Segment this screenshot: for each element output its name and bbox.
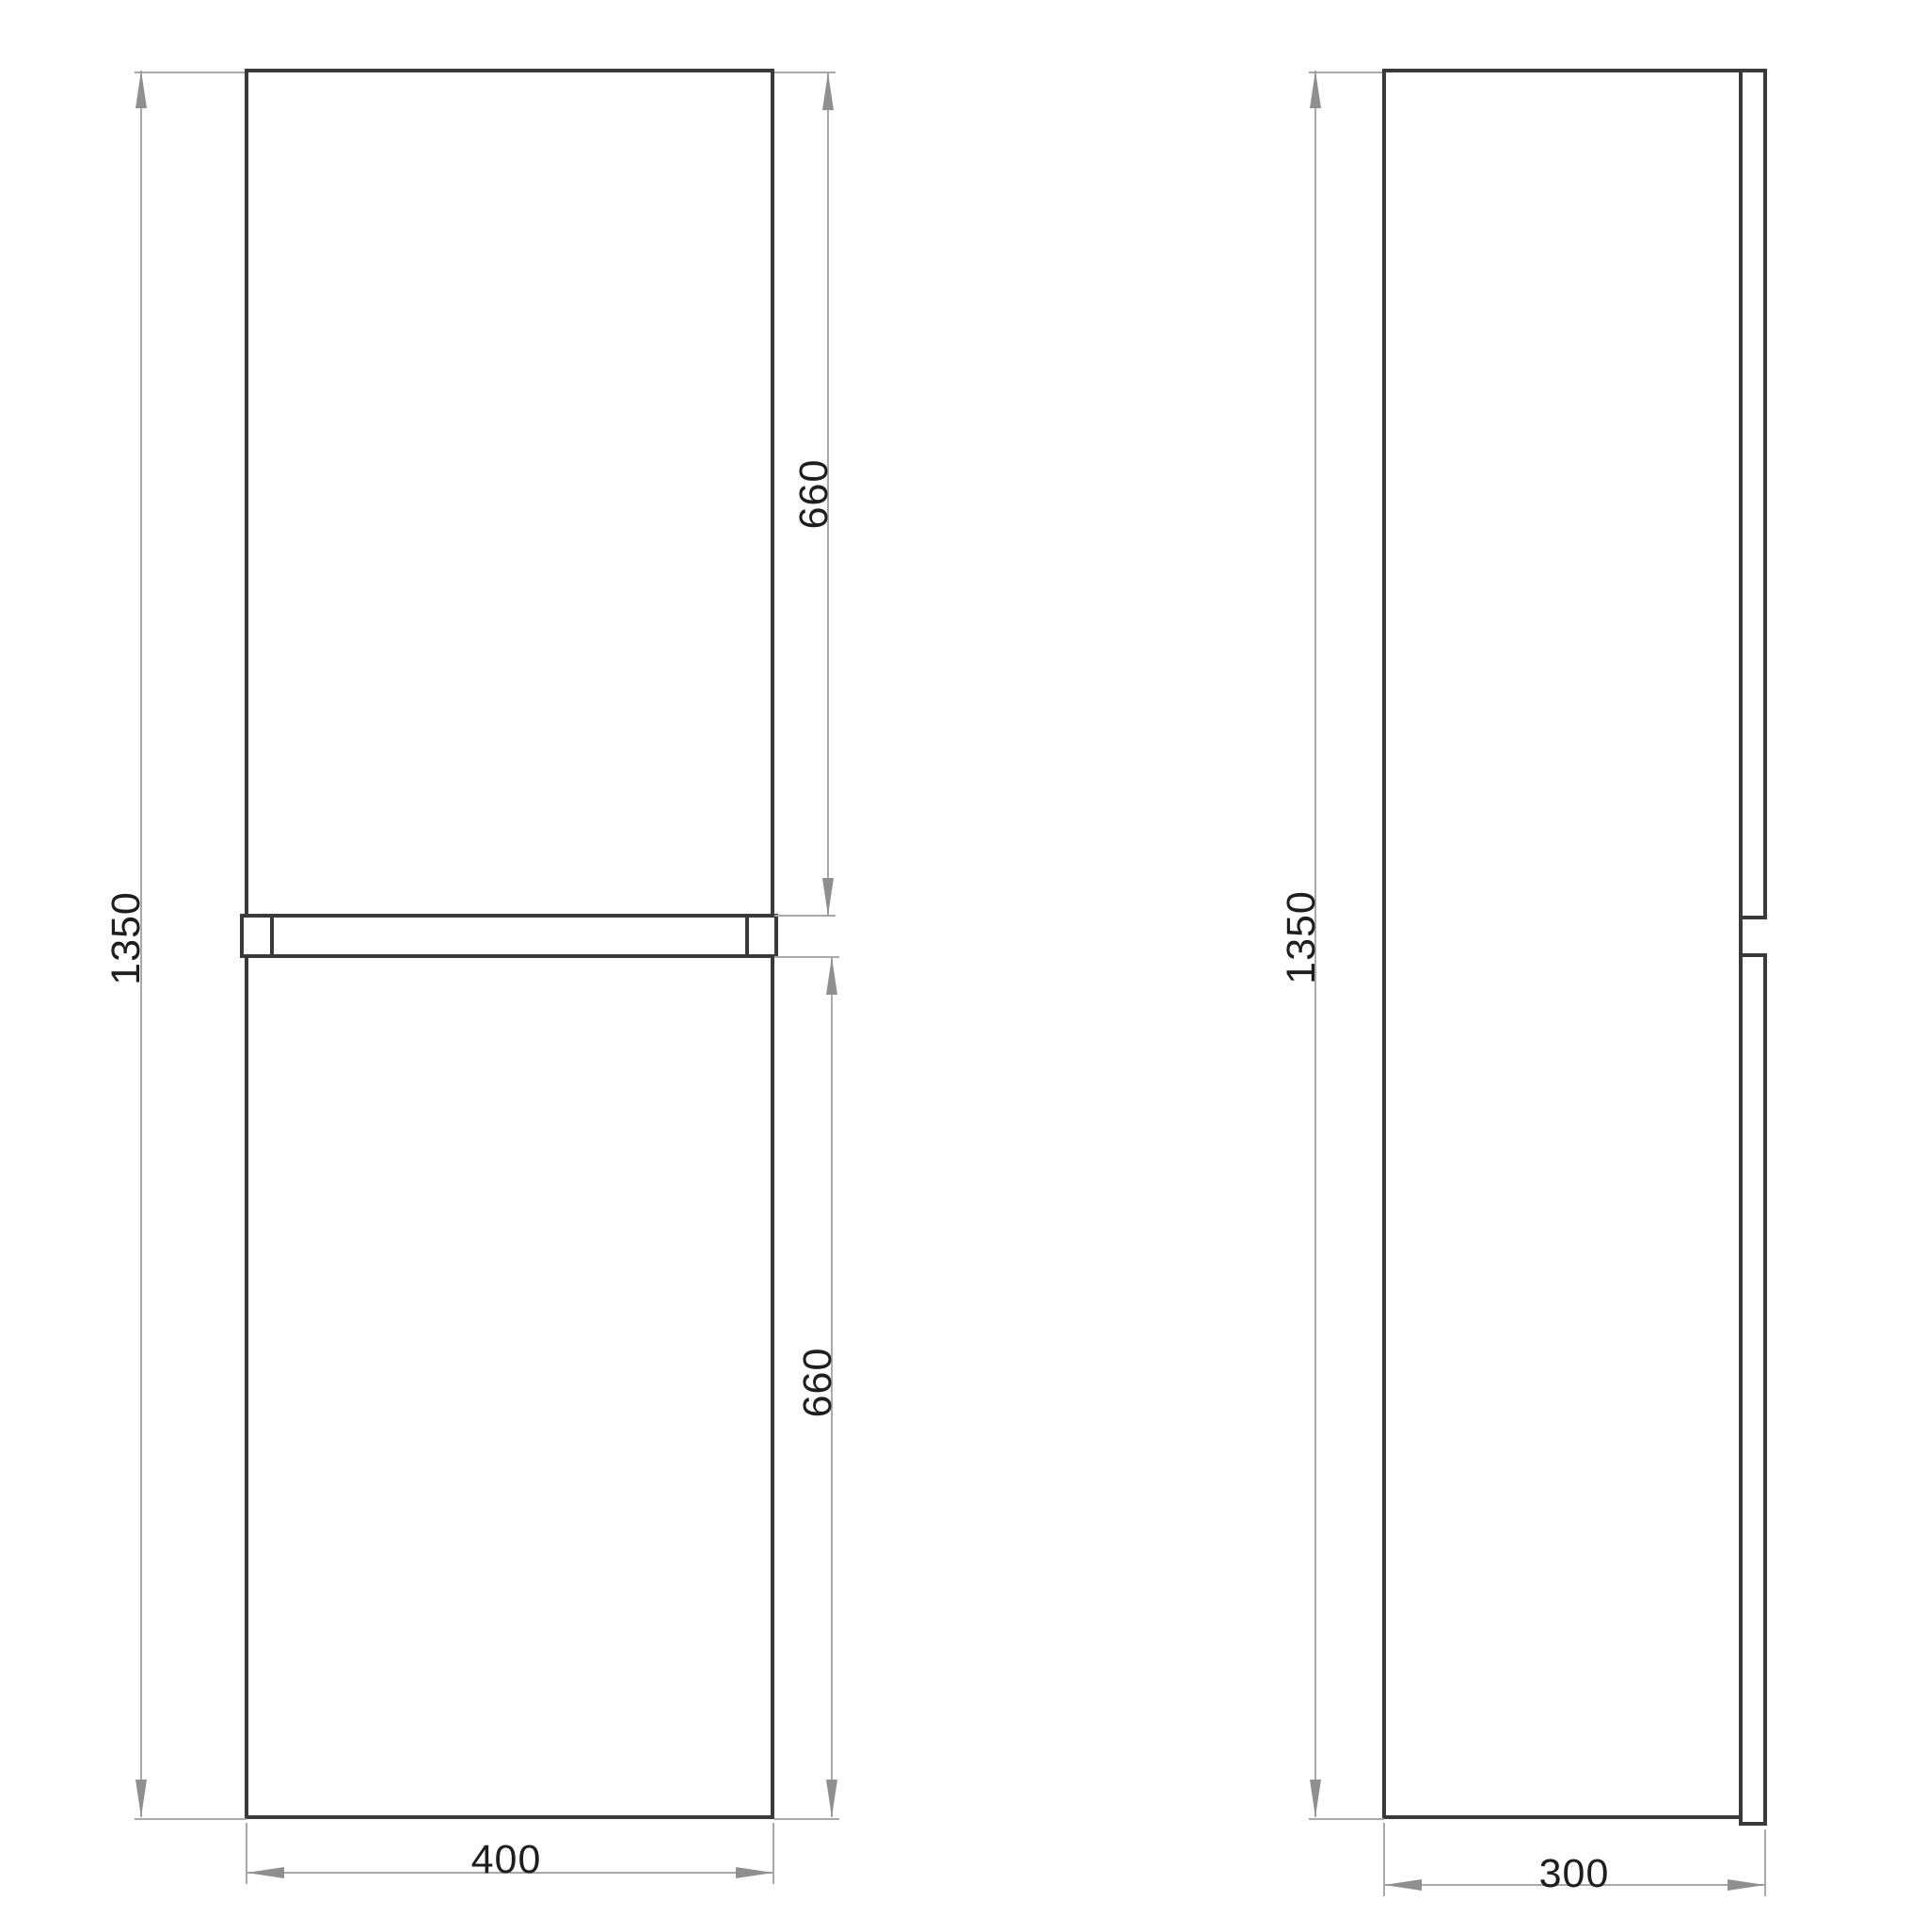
dim-label-front-lower-door: 660 xyxy=(795,1348,840,1418)
arrow-up-icon xyxy=(135,71,147,108)
arrow-up-icon xyxy=(1310,71,1321,108)
arrow-right-icon xyxy=(1728,1879,1765,1891)
arrow-up-icon xyxy=(822,72,834,110)
drawing-page: 1350 660 660 400 xyxy=(0,0,1927,1927)
arrow-left-icon xyxy=(247,1867,284,1878)
side-door-upper-profile xyxy=(1741,71,1765,918)
dim-label-front-overall-height: 1350 xyxy=(104,891,149,985)
dim-side-overall-height: 1350 xyxy=(1279,71,1384,1819)
dim-side-depth: 300 xyxy=(1384,1823,1765,1896)
dim-label-front-upper-door: 660 xyxy=(791,459,836,530)
dim-front-lower-door: 660 xyxy=(774,957,840,1819)
arrow-down-icon xyxy=(822,878,834,916)
dim-label-side-depth: 300 xyxy=(1539,1851,1610,1896)
arrow-down-icon xyxy=(826,1780,837,1817)
dim-label-side-overall-height: 1350 xyxy=(1279,890,1324,984)
dim-label-front-width: 400 xyxy=(471,1837,542,1882)
dim-front-overall-height: 1350 xyxy=(104,71,247,1819)
front-view: 1350 660 660 400 xyxy=(104,71,840,1884)
arrow-up-icon xyxy=(826,957,837,995)
arrow-down-icon xyxy=(1310,1780,1321,1817)
arrow-right-icon xyxy=(736,1867,773,1878)
side-carcass-outline xyxy=(1384,71,1741,1817)
dim-front-width: 400 xyxy=(247,1823,773,1884)
side-door-lower-profile xyxy=(1741,955,1765,1824)
side-view: 1350 300 xyxy=(1279,71,1765,1896)
technical-drawing-canvas: 1350 660 660 400 xyxy=(0,0,1927,1927)
door-gap-divider-bar xyxy=(242,916,776,956)
arrow-down-icon xyxy=(135,1780,147,1817)
arrow-left-icon xyxy=(1384,1879,1422,1891)
dim-front-upper-door: 660 xyxy=(774,72,836,916)
